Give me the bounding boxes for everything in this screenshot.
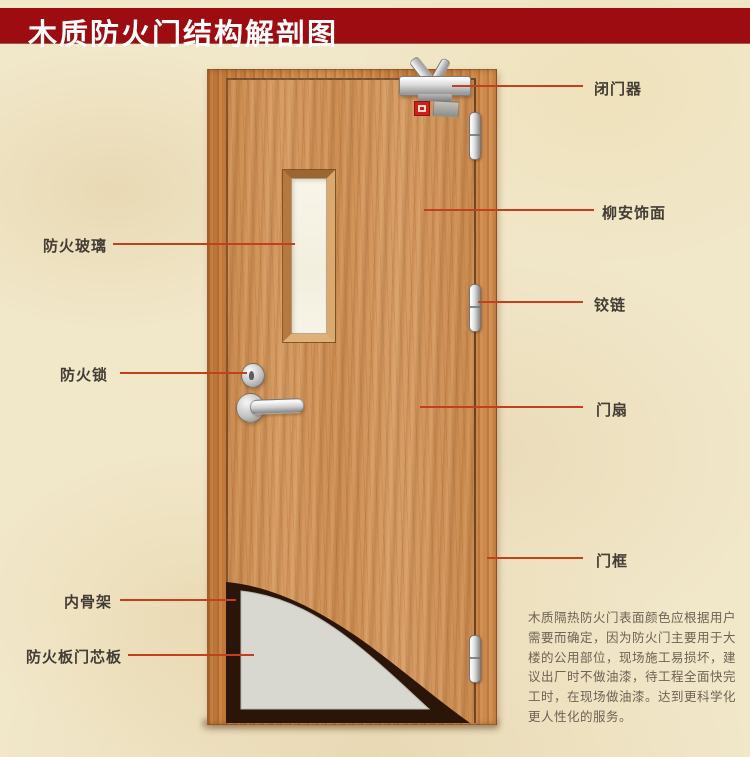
label-veneer: 柳安饰面 <box>602 202 666 223</box>
label-door-frame: 门框 <box>596 550 628 571</box>
leader-line-core-board <box>128 654 254 656</box>
page: { "header": { "title": "木质防火门结构解剖图" }, "… <box>0 0 750 757</box>
leader-line-door-leaf <box>420 406 583 408</box>
hinge-top <box>469 112 481 160</box>
description-line: 需要而确定，因为防火门主要用于大 <box>528 628 724 648</box>
hinge-bottom <box>469 635 481 683</box>
leader-line-fire-glass <box>113 243 295 245</box>
door-handle <box>250 398 304 415</box>
description-line: 工时，在现场做油漆。达到更科学化 <box>528 687 724 707</box>
description-line: 议出厂时不做油漆，待工程全面快完 <box>528 667 724 687</box>
core-board-shape <box>241 591 429 709</box>
leader-line-hinge <box>478 301 583 303</box>
label-core-board: 防火板门芯板 <box>20 646 122 667</box>
leader-line-inner-skeleton <box>120 599 236 601</box>
leader-line-door-frame <box>487 557 583 559</box>
label-door-closer: 闭门器 <box>594 78 642 99</box>
description-line: 更人性化的服务。 <box>528 707 724 727</box>
label-fire-lock: 防火锁 <box>20 364 108 385</box>
hinge-middle <box>469 284 481 332</box>
leader-line-door-closer <box>452 85 583 87</box>
label-hinge: 铰链 <box>594 294 626 315</box>
fire-glass-window <box>283 170 335 342</box>
label-fire-glass: 防火玻璃 <box>17 235 107 256</box>
keyhole <box>249 371 254 380</box>
nameplate <box>433 100 460 117</box>
description-line: 木质隔热防火门表面颜色应根据用户 <box>528 608 724 628</box>
page-title: 木质防火门结构解剖图 <box>28 11 338 53</box>
cutaway-section <box>226 575 476 723</box>
label-door-leaf: 门扇 <box>596 399 628 420</box>
red-label-sticker <box>414 101 430 116</box>
description-line: 楼的公用部位，现场施工易损坏，建 <box>528 648 724 668</box>
leader-line-fire-lock <box>120 372 247 374</box>
leader-line-veneer <box>424 209 594 211</box>
label-inner-skeleton: 内骨架 <box>24 591 112 612</box>
description-text: 木质隔热防火门表面颜色应根据用户 需要而确定，因为防火门主要用于大 楼的公用部位… <box>528 608 724 727</box>
